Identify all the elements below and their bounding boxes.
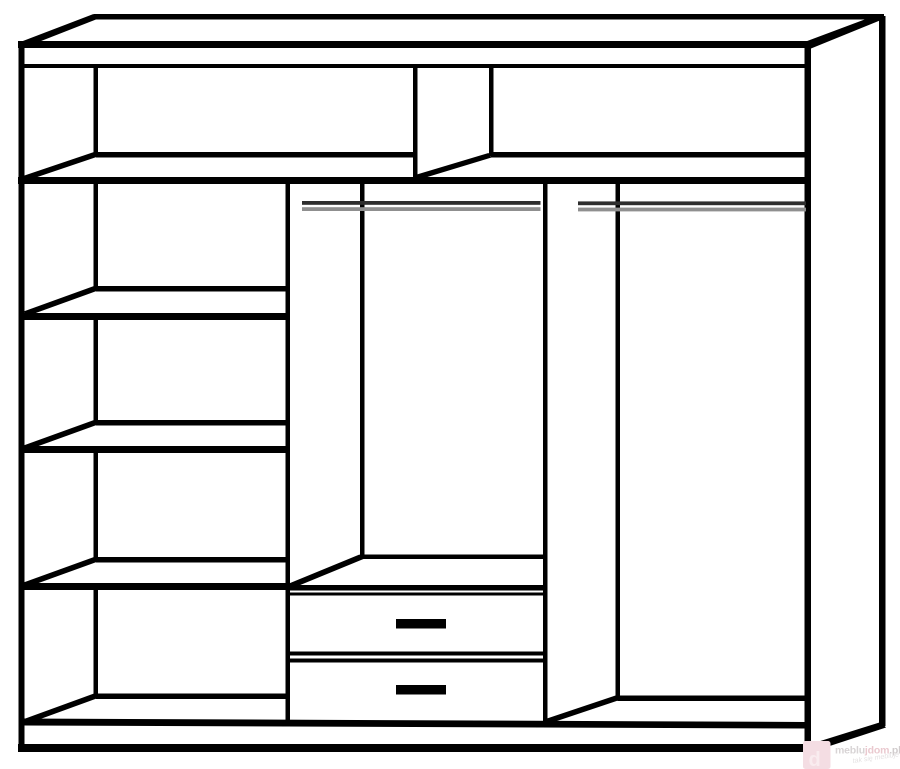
svg-text:d: d xyxy=(809,749,821,769)
